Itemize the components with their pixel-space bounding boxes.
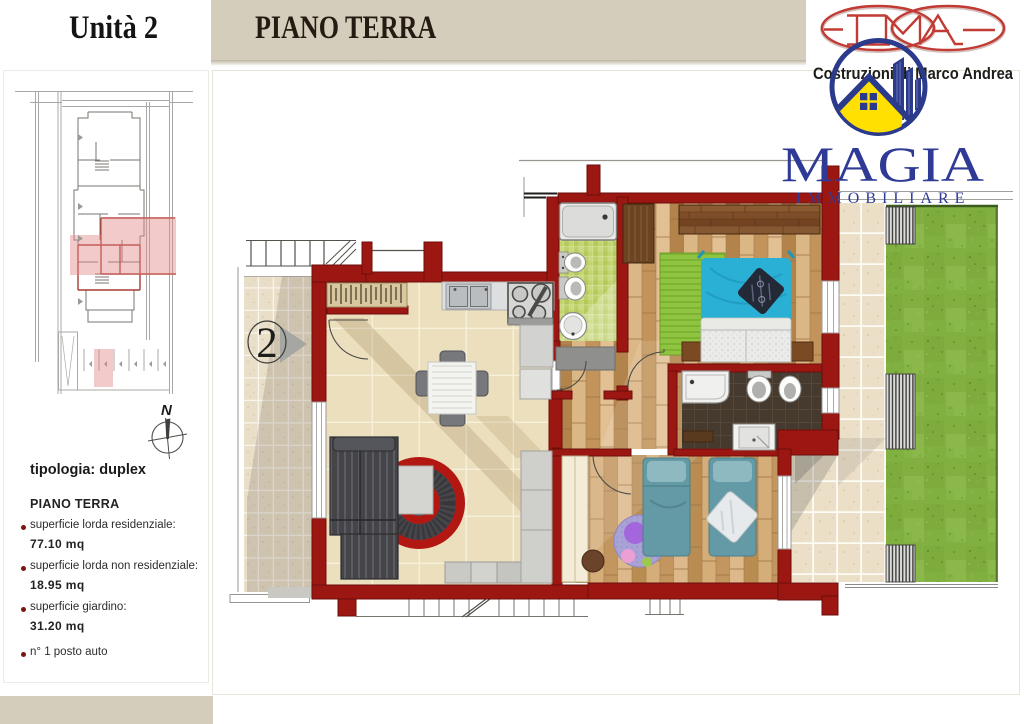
svg-text:2: 2 bbox=[256, 320, 278, 367]
svg-text:MAGIA: MAGIA bbox=[781, 136, 984, 192]
svg-text:IMMOBILIARE: IMMOBILIARE bbox=[796, 190, 970, 207]
svg-text:Costruzioni di Marco Andrea: Costruzioni di Marco Andrea bbox=[813, 65, 1014, 83]
svg-text:N: N bbox=[161, 402, 173, 419]
